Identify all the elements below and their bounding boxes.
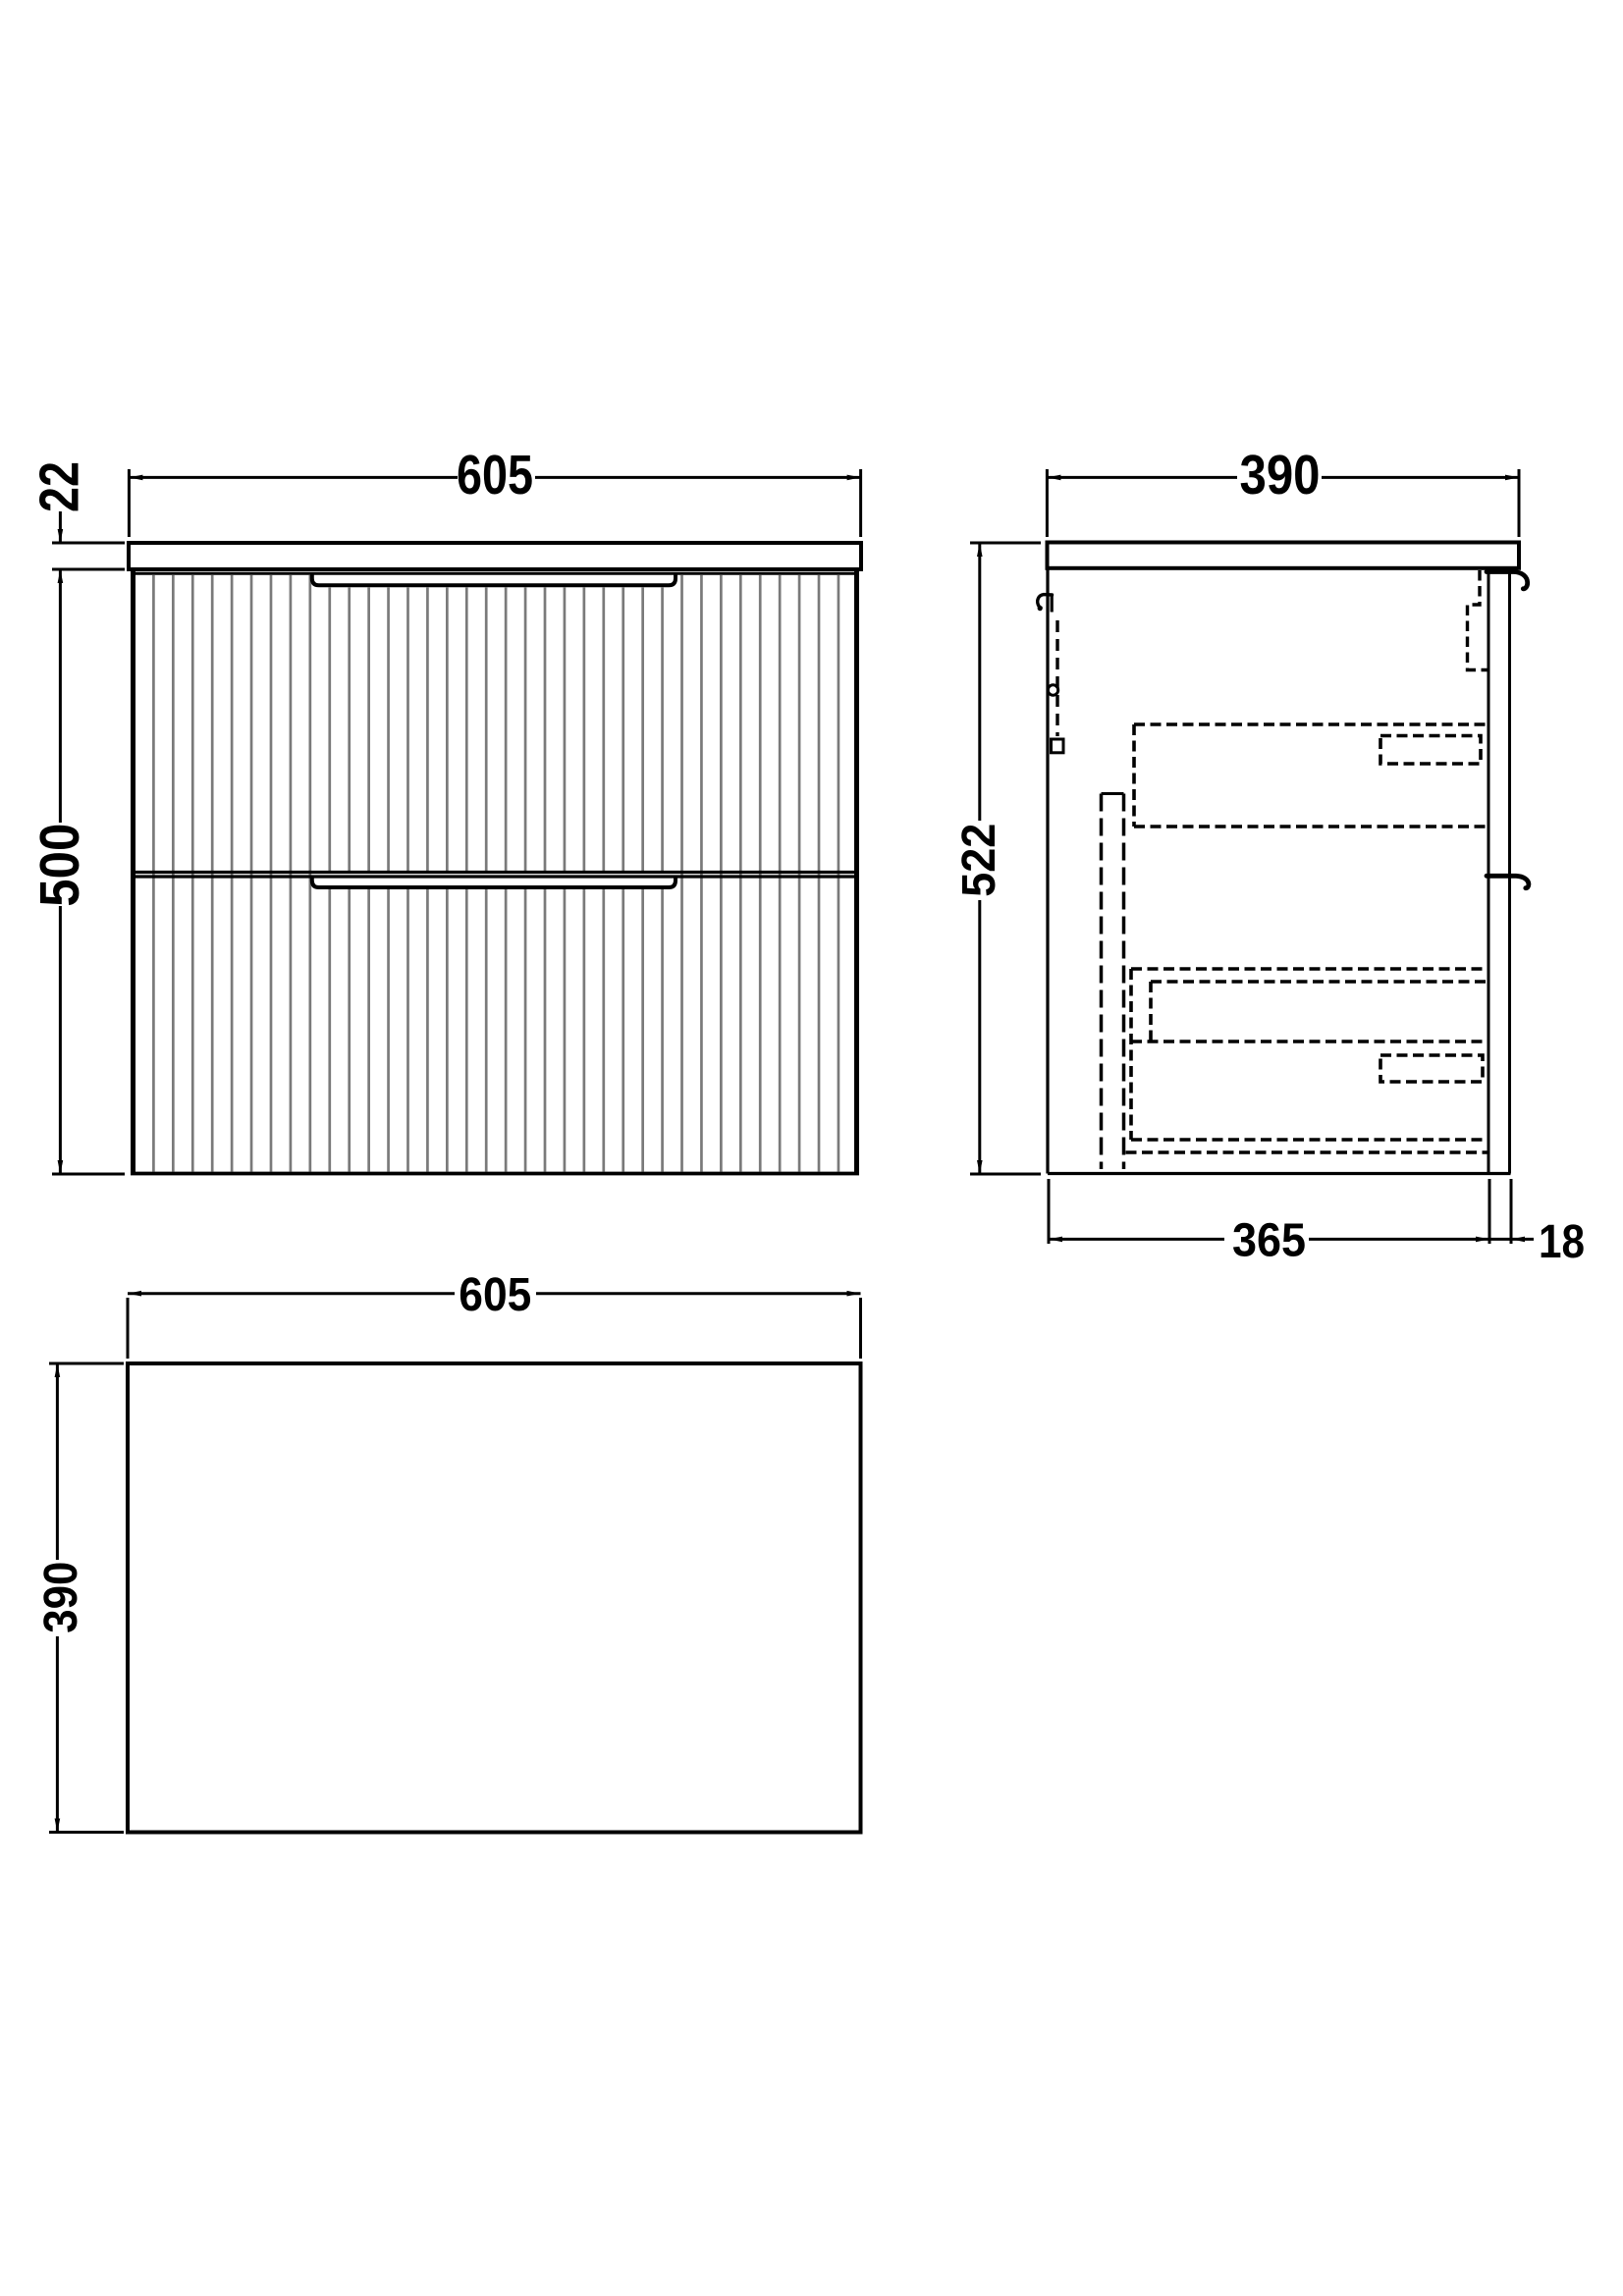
svg-text:605: 605	[459, 1269, 531, 1321]
svg-text:18: 18	[1539, 1216, 1585, 1268]
svg-text:522: 522	[953, 824, 1005, 897]
svg-text:500: 500	[28, 824, 91, 907]
svg-text:365: 365	[1232, 1215, 1306, 1267]
svg-text:390: 390	[35, 1562, 87, 1633]
svg-text:390: 390	[1240, 444, 1321, 507]
svg-text:605: 605	[457, 444, 533, 507]
svg-text:22: 22	[28, 461, 91, 512]
